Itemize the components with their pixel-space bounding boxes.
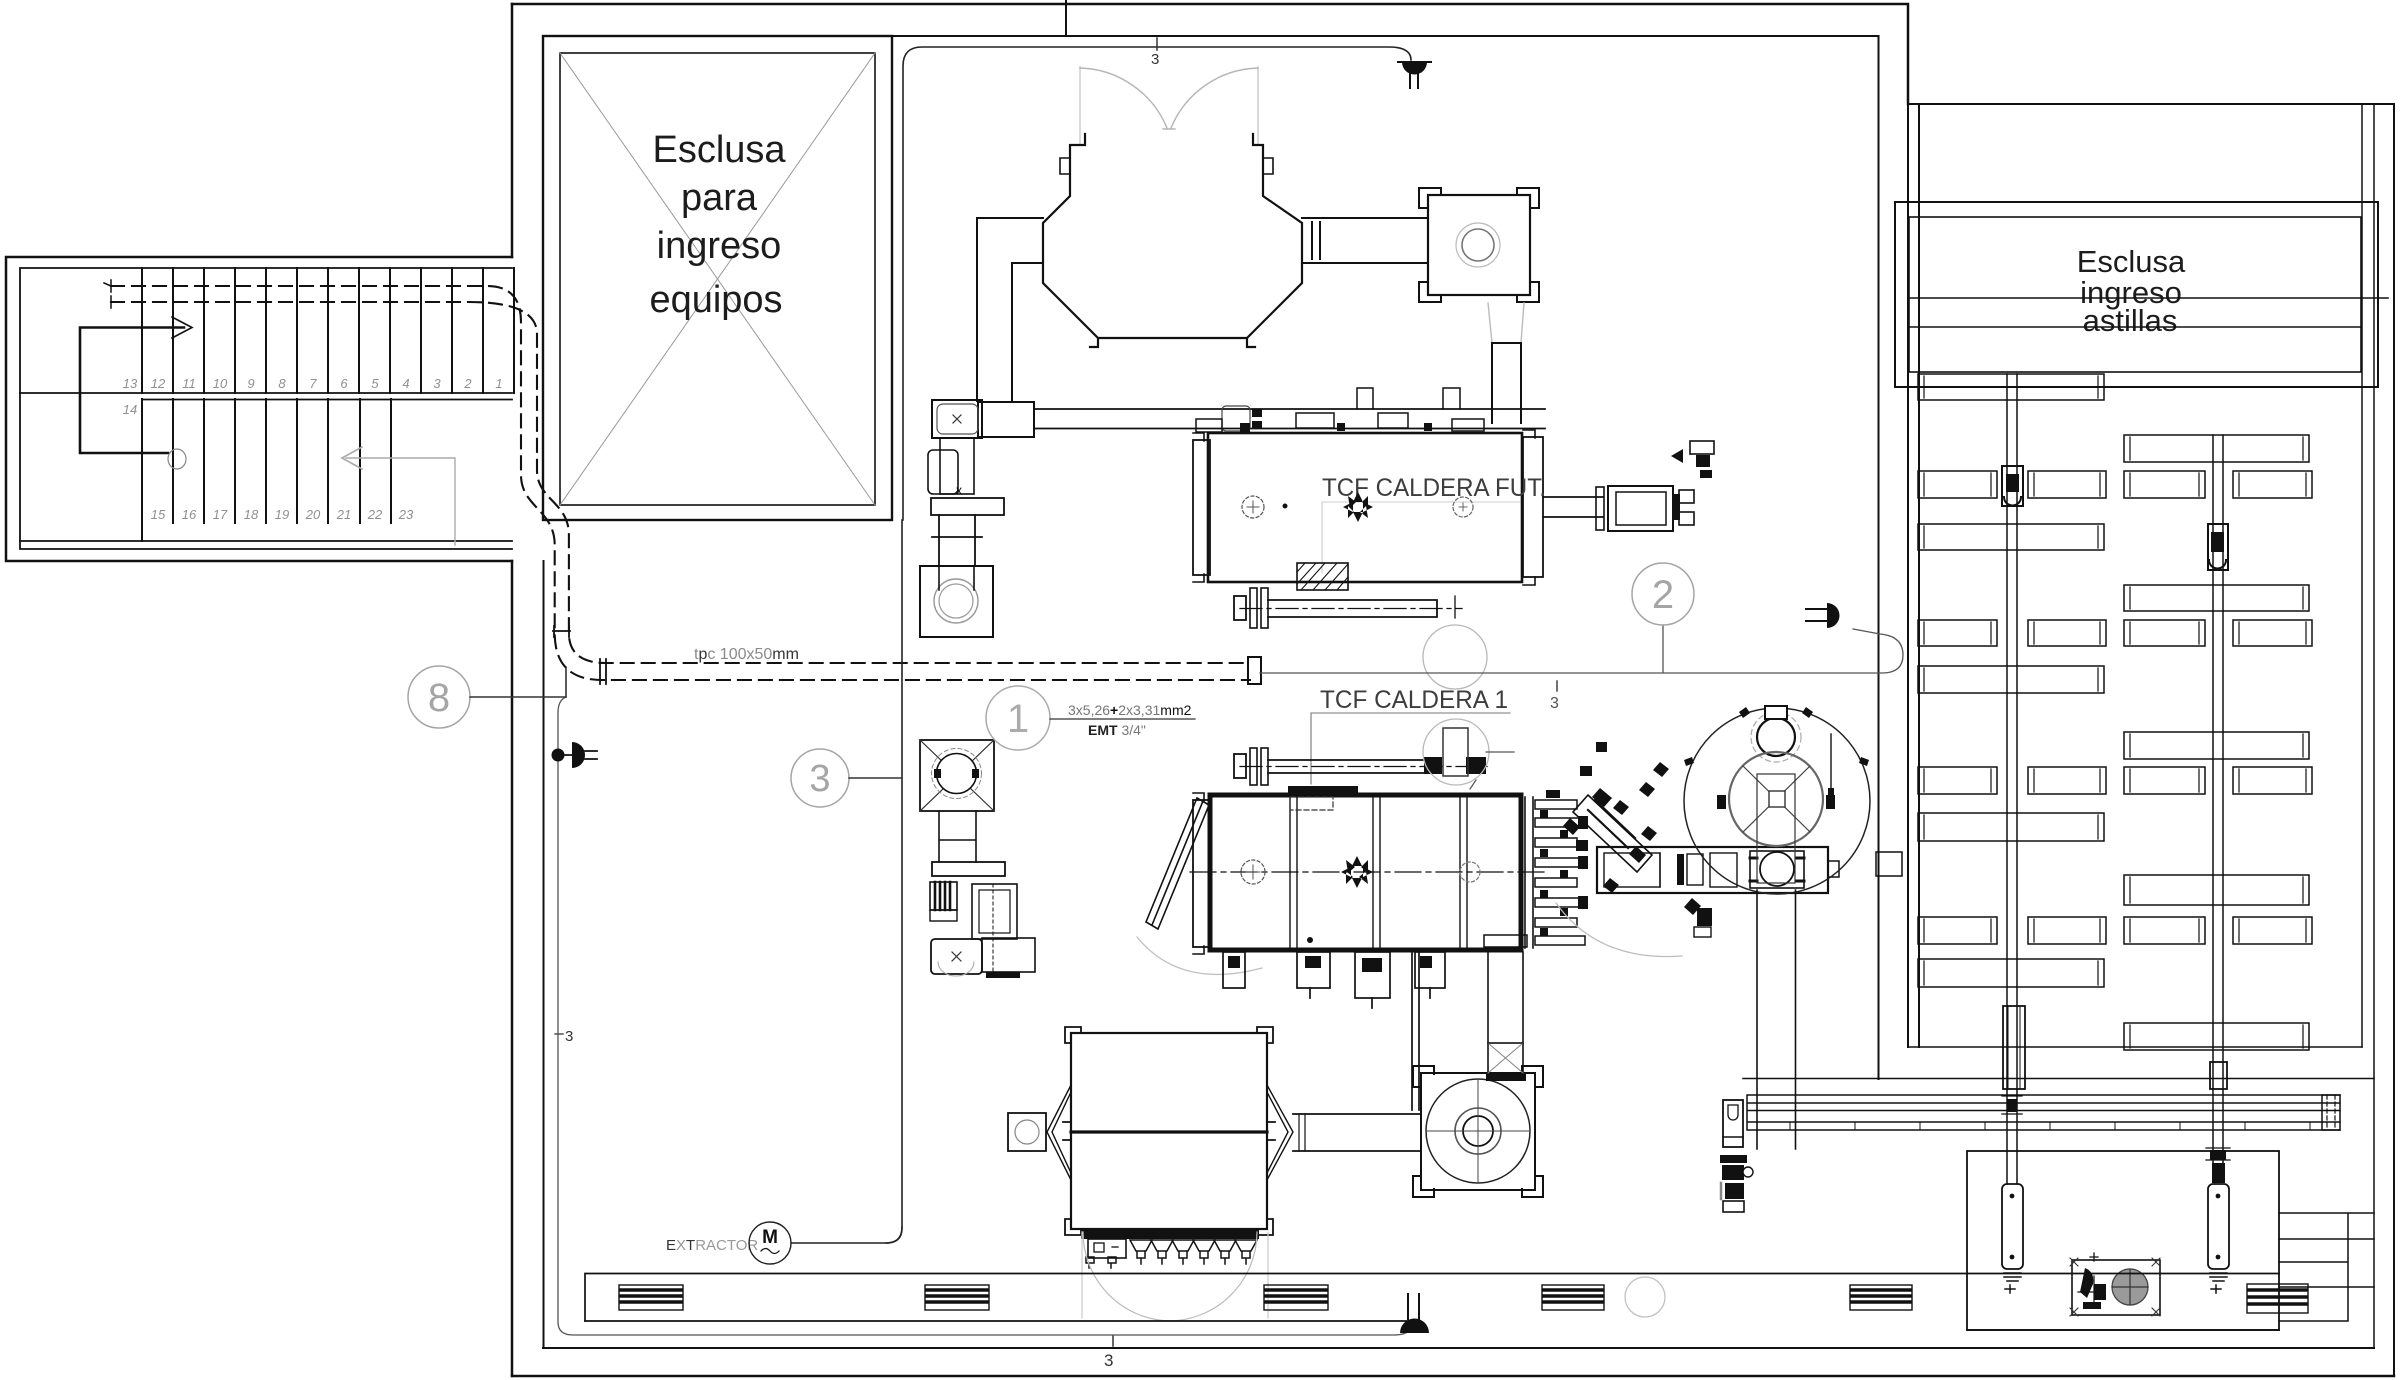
- svg-text:4: 4: [402, 376, 409, 391]
- svg-text:5: 5: [371, 376, 379, 391]
- svg-text:10: 10: [213, 376, 228, 391]
- svg-text:14: 14: [123, 402, 137, 417]
- svg-text:M: M: [762, 1227, 778, 1248]
- svg-text:18: 18: [244, 507, 259, 522]
- svg-text:ingreso: ingreso: [657, 225, 782, 267]
- svg-text:15: 15: [151, 507, 166, 522]
- svg-text:2: 2: [463, 376, 472, 391]
- svg-text:1: 1: [495, 376, 502, 391]
- svg-text:12: 12: [151, 376, 166, 391]
- svg-text:2: 2: [1652, 573, 1674, 617]
- svg-text:EMT 3/4": EMT 3/4": [1088, 722, 1146, 738]
- svg-text:Esclusa: Esclusa: [652, 129, 786, 171]
- svg-text:EXTRACTOR: EXTRACTOR: [666, 1237, 758, 1254]
- svg-text:TCF CALDERA 1: TCF CALDERA 1: [1320, 686, 1508, 714]
- svg-text:3: 3: [433, 376, 441, 391]
- svg-text:para: para: [681, 177, 758, 219]
- svg-text:19: 19: [275, 507, 289, 522]
- svg-text:17: 17: [213, 507, 228, 522]
- svg-text:3: 3: [1550, 695, 1559, 712]
- svg-text:Esclusa: Esclusa: [2077, 244, 2186, 279]
- svg-text:16: 16: [182, 507, 197, 522]
- svg-text:13: 13: [123, 376, 138, 391]
- svg-text:3: 3: [1104, 1351, 1113, 1370]
- svg-text:23: 23: [398, 507, 414, 522]
- svg-text:6: 6: [340, 376, 348, 391]
- svg-text:8: 8: [278, 376, 286, 391]
- svg-text:7: 7: [309, 376, 317, 391]
- svg-text:20: 20: [305, 507, 321, 522]
- svg-text:3: 3: [565, 1028, 573, 1045]
- svg-text:astillas: astillas: [2083, 303, 2178, 338]
- svg-text:3: 3: [809, 758, 830, 800]
- svg-text:equipos: equipos: [649, 279, 782, 321]
- svg-text:9: 9: [247, 376, 254, 391]
- svg-text:3x5,26+2x3,31mm2: 3x5,26+2x3,31mm2: [1068, 702, 1192, 718]
- svg-text:3: 3: [1151, 51, 1159, 68]
- svg-text:1: 1: [1007, 697, 1029, 741]
- svg-text:8: 8: [428, 676, 450, 720]
- svg-text:11: 11: [182, 376, 196, 391]
- svg-text:tpc 100x50mm: tpc 100x50mm: [694, 646, 799, 663]
- svg-text:22: 22: [367, 507, 383, 522]
- svg-text:21: 21: [336, 507, 351, 522]
